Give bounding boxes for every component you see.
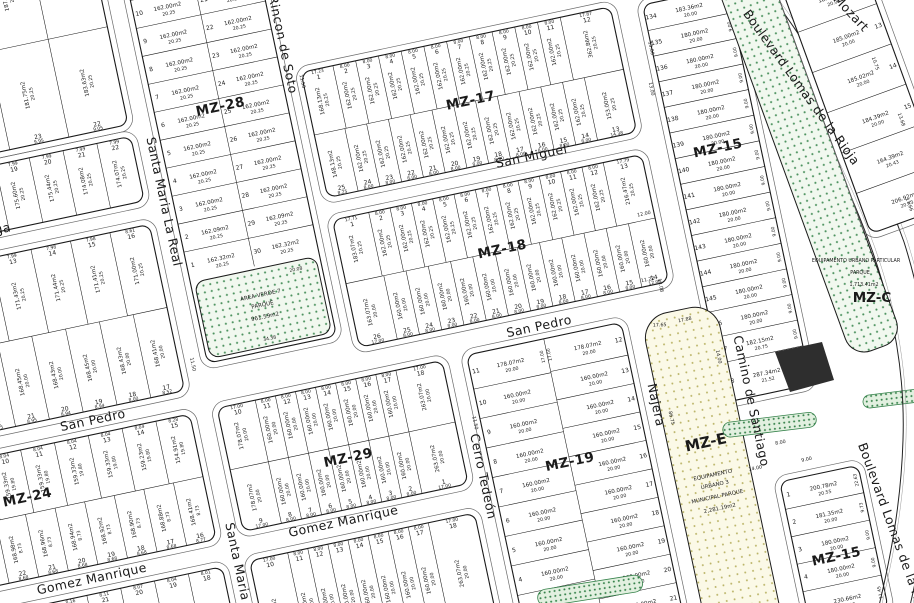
- dimension-label: 17.65: [653, 322, 667, 328]
- green-area-text: 1,713.41m2: [849, 282, 878, 288]
- map-viewport: 185.57m220.258.88180.36m220.2510.32187.4…: [0, 0, 914, 603]
- green-area-text: MZ-C: [853, 290, 892, 306]
- green-area-text: PARQUE: [850, 270, 870, 276]
- cadastral-plat-map: 185.57m220.258.88180.36m220.2510.32187.4…: [0, 0, 914, 603]
- green-area-text: EQUIPAMENTO URBANO PARTICULAR: [812, 258, 901, 264]
